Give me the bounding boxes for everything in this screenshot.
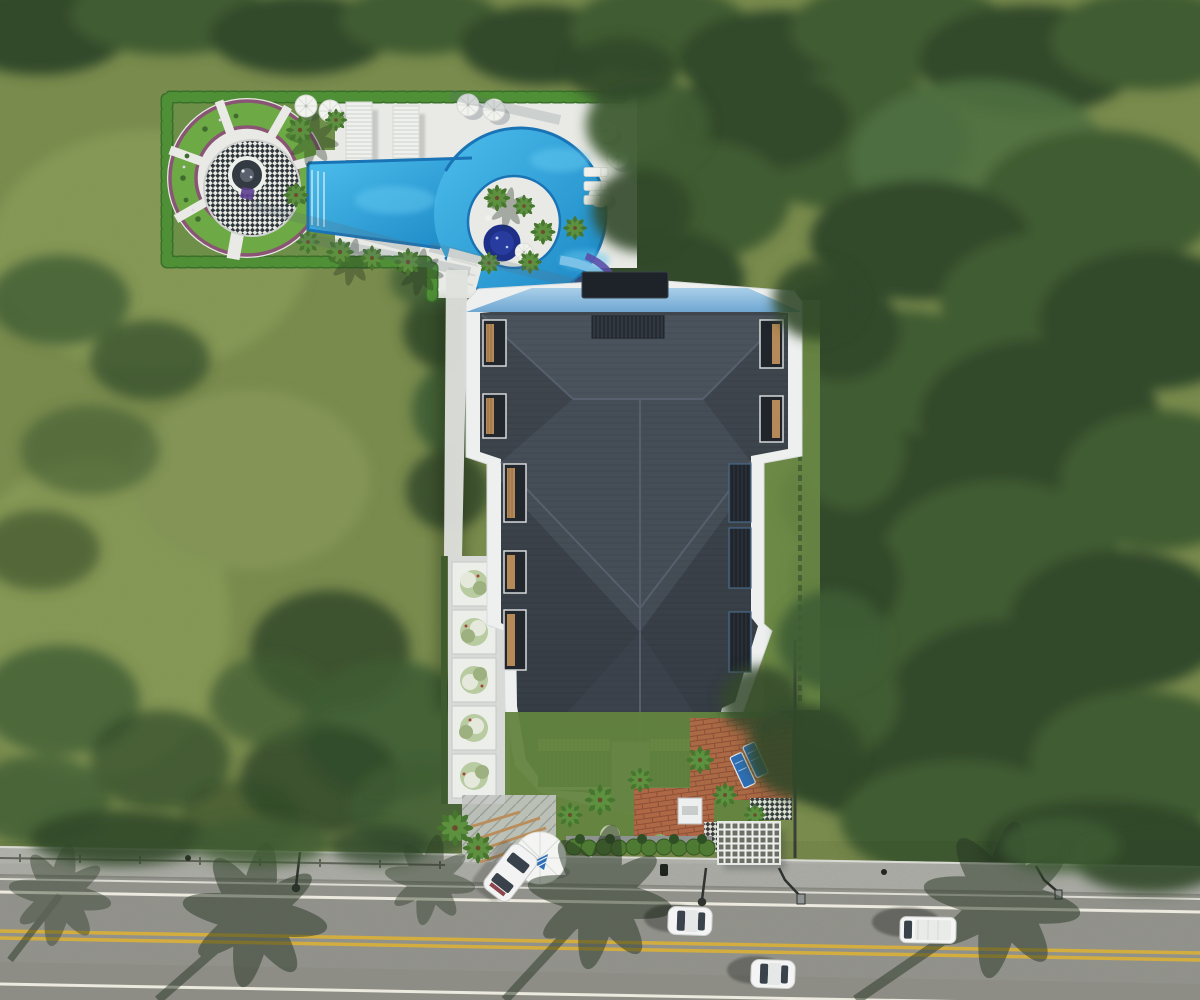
palm-tree — [530, 219, 555, 244]
aerial-site-render — [0, 0, 1200, 1000]
palm-tree — [463, 833, 494, 864]
palm-tree — [627, 767, 652, 792]
entrance-kiosk — [678, 798, 702, 824]
palm-tree — [712, 782, 737, 807]
balcony — [760, 320, 783, 368]
lattice-pergola — [718, 822, 786, 870]
balcony — [729, 464, 751, 522]
sun-lounger — [584, 168, 608, 177]
palm-tree — [557, 802, 582, 827]
pergola-bay — [346, 102, 372, 166]
balcony — [760, 396, 783, 442]
palm-tree — [325, 109, 347, 131]
balcony — [504, 551, 526, 593]
palm-tree — [286, 116, 314, 144]
island-table — [485, 215, 491, 221]
balcony — [504, 610, 526, 670]
trash-bin — [660, 864, 668, 876]
rooftop-service-box — [582, 272, 668, 298]
balcony — [483, 394, 506, 438]
palm-tree — [283, 182, 308, 207]
bollard — [881, 869, 887, 875]
palm-tree — [484, 185, 511, 212]
palm-tree — [563, 216, 587, 240]
walkway-hedge — [441, 556, 447, 804]
umbrella — [295, 95, 317, 117]
palm-tree — [585, 785, 616, 816]
palm-tree — [513, 195, 535, 217]
balcony — [504, 464, 526, 522]
balcony — [483, 320, 506, 366]
palm-tree — [686, 746, 714, 774]
roof-vent-grille — [592, 316, 664, 338]
balcony — [729, 612, 751, 672]
balcony — [729, 528, 751, 588]
site-plan-canvas — [0, 0, 1200, 1000]
